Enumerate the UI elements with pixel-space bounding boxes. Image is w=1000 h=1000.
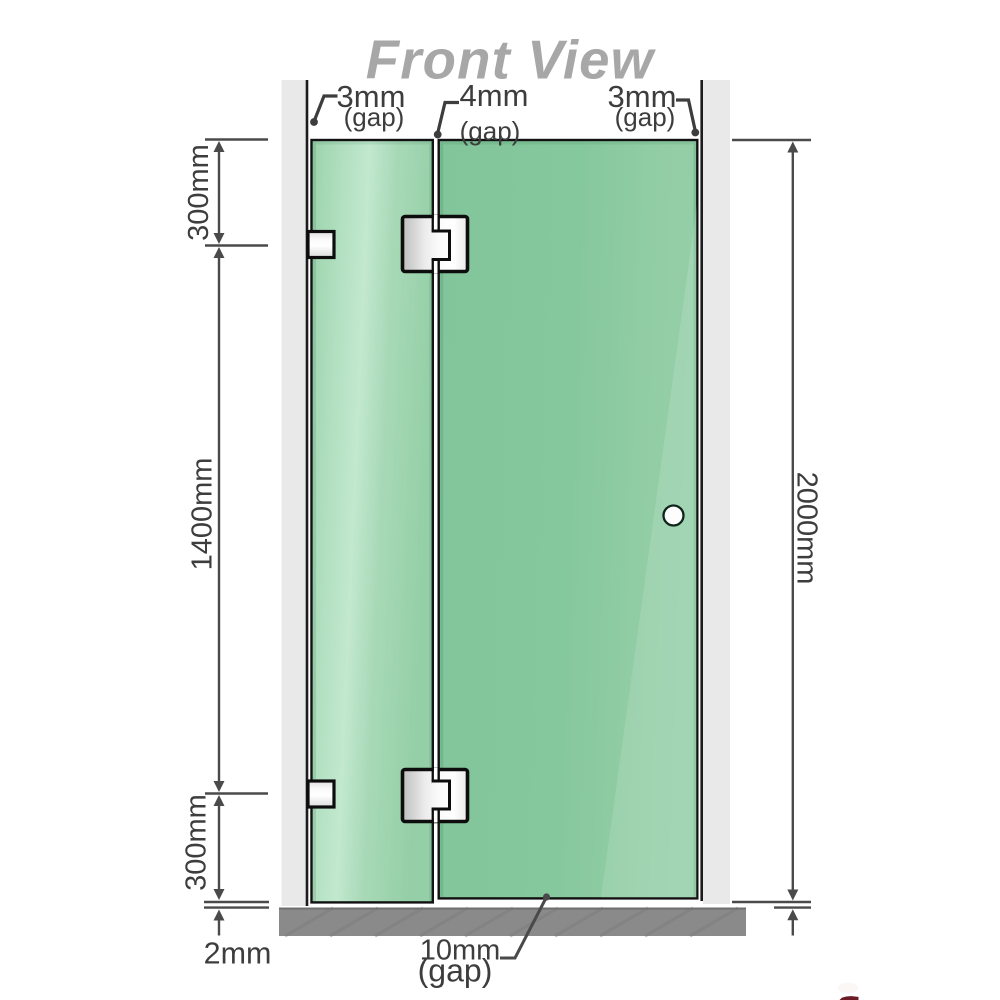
svg-text:300mm: 300mm [181,794,213,891]
svg-text:(gap): (gap) [460,116,521,146]
svg-text:2mm: 2mm [204,937,272,971]
svg-text:300mm: 300mm [183,144,215,241]
svg-text:(gap): (gap) [615,102,676,132]
svg-text:1400mm: 1400mm [187,458,219,571]
svg-text:(gap): (gap) [344,102,405,132]
svg-text:(gap): (gap) [418,953,493,989]
svg-text:4mm: 4mm [460,78,529,113]
svg-text:2000mm: 2000mm [791,472,823,585]
